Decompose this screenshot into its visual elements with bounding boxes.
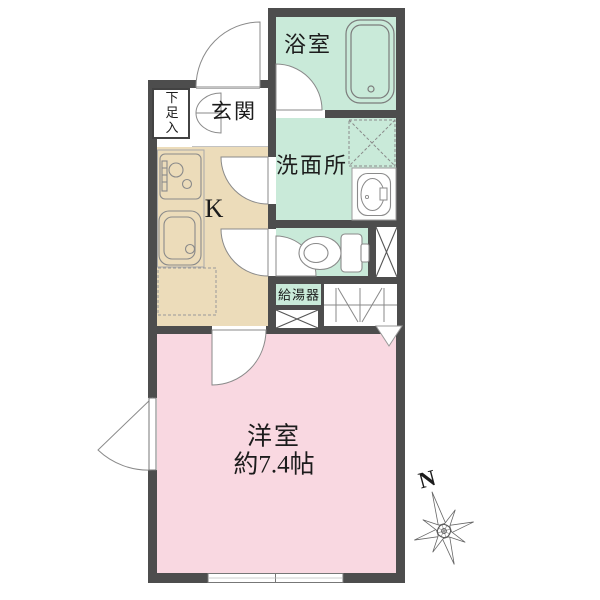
meter-box: [276, 310, 318, 328]
washroom-label: 洗面所: [276, 155, 348, 177]
entrance-step-line: [192, 146, 268, 147]
bath-label: 浴室: [284, 34, 332, 56]
closet-box: [324, 284, 397, 326]
washroom-doorway: [268, 157, 276, 204]
toilet-floor: [276, 228, 368, 276]
western-room-area-label: 約7.4帖: [233, 453, 314, 478]
bottom-window-gap: [208, 573, 343, 583]
entrance-label: 玄関: [211, 102, 257, 123]
western-room-label: 洋室: [247, 425, 301, 450]
compass-rose-icon: [400, 482, 487, 575]
entry-doorway: [196, 79, 260, 89]
kitchen-label: K: [205, 196, 224, 222]
western-room-doorway: [212, 326, 266, 334]
floor-plan: 浴室 玄関 下足入 K 洗面所 給湯器 洋室 約7.4帖 N: [0, 0, 600, 600]
entry-door-swing-icon: [196, 22, 260, 87]
kitchen-floor: [157, 147, 268, 326]
casement-window-icon: [98, 398, 152, 470]
left-window-gap: [148, 398, 157, 470]
toilet-doorway: [268, 229, 276, 276]
compass-north-label: N: [416, 465, 440, 492]
water-heater-label: 給湯器: [278, 289, 320, 302]
bath-doorway: [276, 110, 325, 118]
bath-floor: [276, 17, 396, 110]
pipe-space-box: [376, 227, 397, 277]
shoe-storage-label: 下足入: [165, 91, 178, 136]
